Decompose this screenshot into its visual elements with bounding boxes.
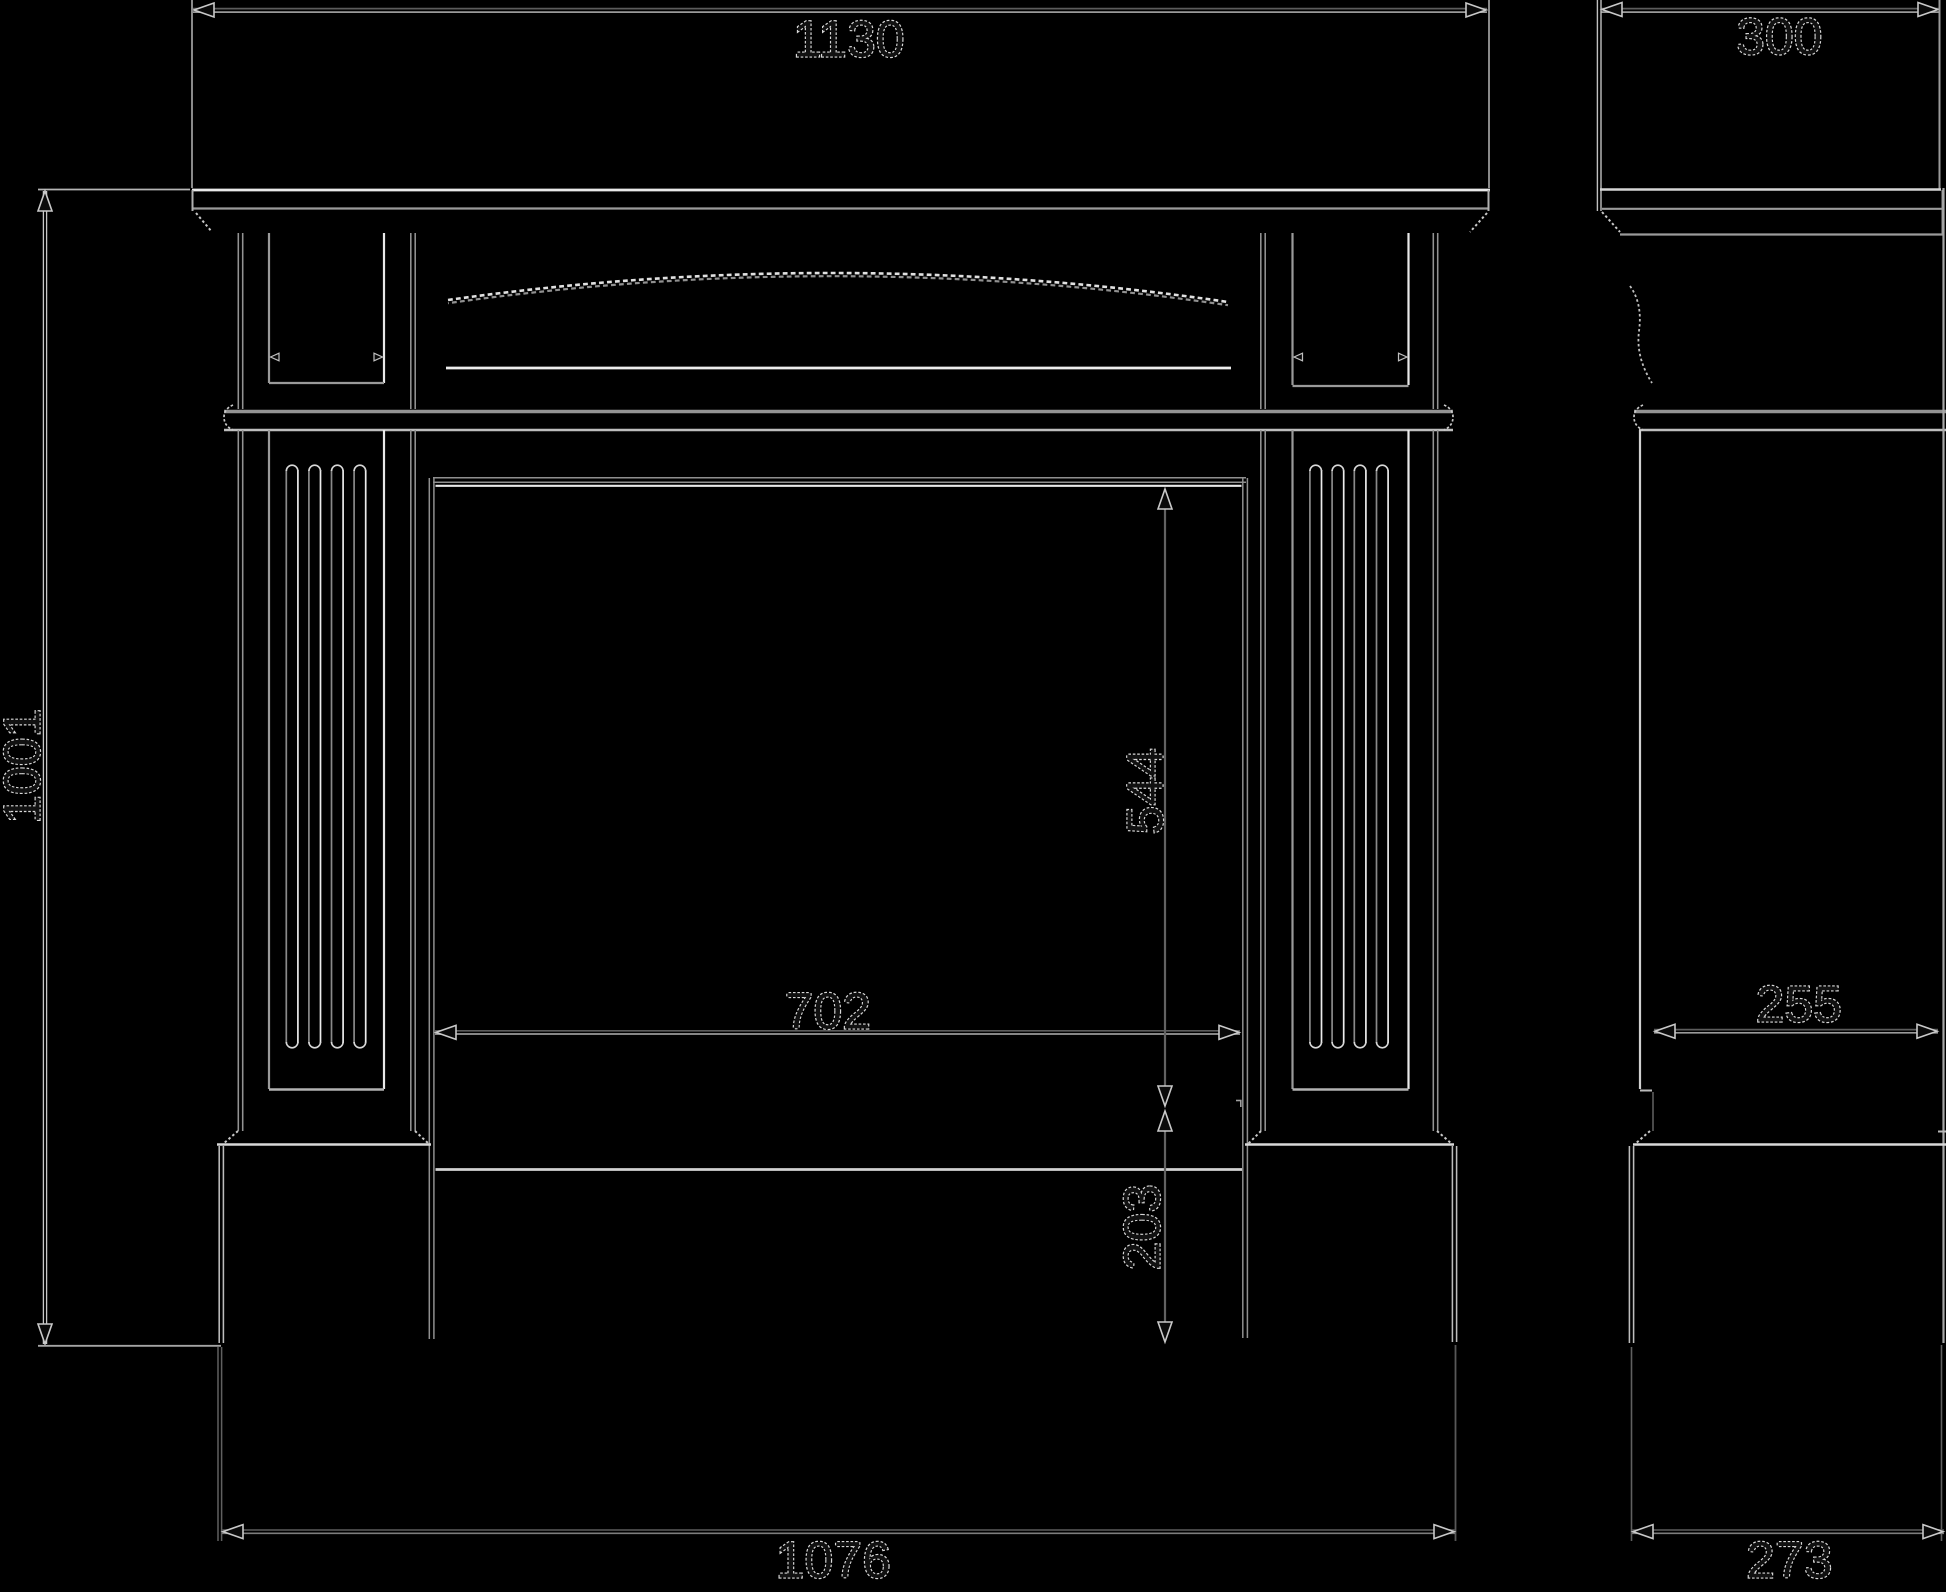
svg-text:203: 203 bbox=[1114, 1184, 1171, 1271]
svg-text:1001: 1001 bbox=[0, 708, 51, 823]
svg-text:1076: 1076 bbox=[776, 1532, 891, 1589]
svg-text:255: 255 bbox=[1756, 976, 1843, 1033]
svg-text:702: 702 bbox=[785, 983, 872, 1040]
svg-text:1130: 1130 bbox=[793, 11, 905, 68]
svg-text:544: 544 bbox=[1117, 748, 1174, 835]
svg-text:300: 300 bbox=[1736, 8, 1823, 65]
svg-text:273: 273 bbox=[1746, 1532, 1833, 1589]
